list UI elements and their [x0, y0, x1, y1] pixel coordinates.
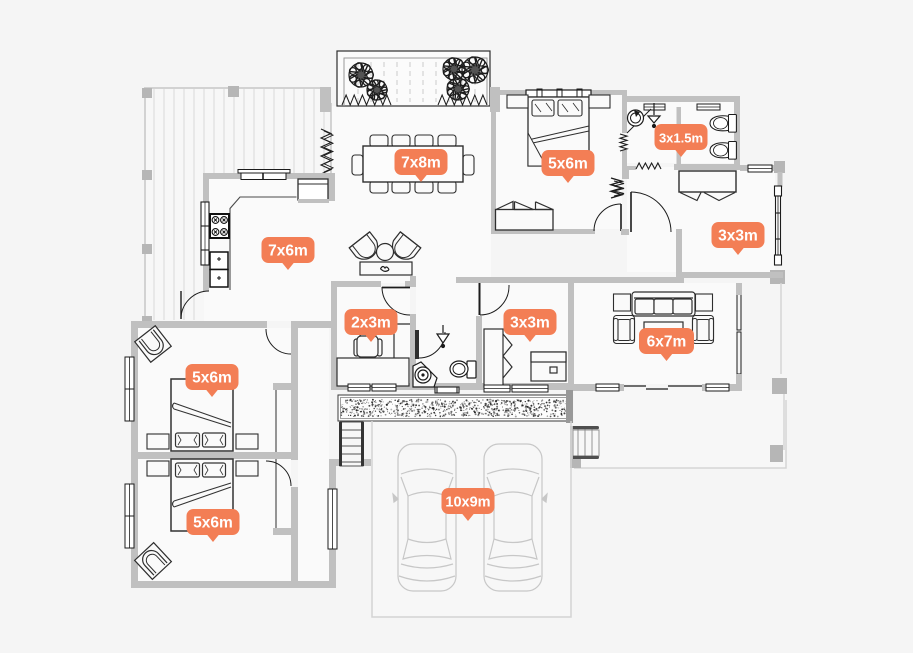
svg-text:3x3m: 3x3m [510, 315, 550, 332]
svg-text:5x6m: 5x6m [193, 515, 233, 532]
svg-text:7x8m: 7x8m [401, 155, 441, 172]
svg-text:3x1.5m: 3x1.5m [659, 131, 703, 146]
svg-text:7x6m: 7x6m [268, 243, 308, 260]
svg-text:5x6m: 5x6m [192, 370, 232, 387]
svg-text:6x7m: 6x7m [647, 334, 687, 351]
svg-text:10x9m: 10x9m [445, 495, 490, 511]
svg-text:2x3m: 2x3m [351, 315, 391, 332]
svg-text:5x6m: 5x6m [548, 156, 588, 173]
svg-text:3x3m: 3x3m [718, 228, 758, 245]
